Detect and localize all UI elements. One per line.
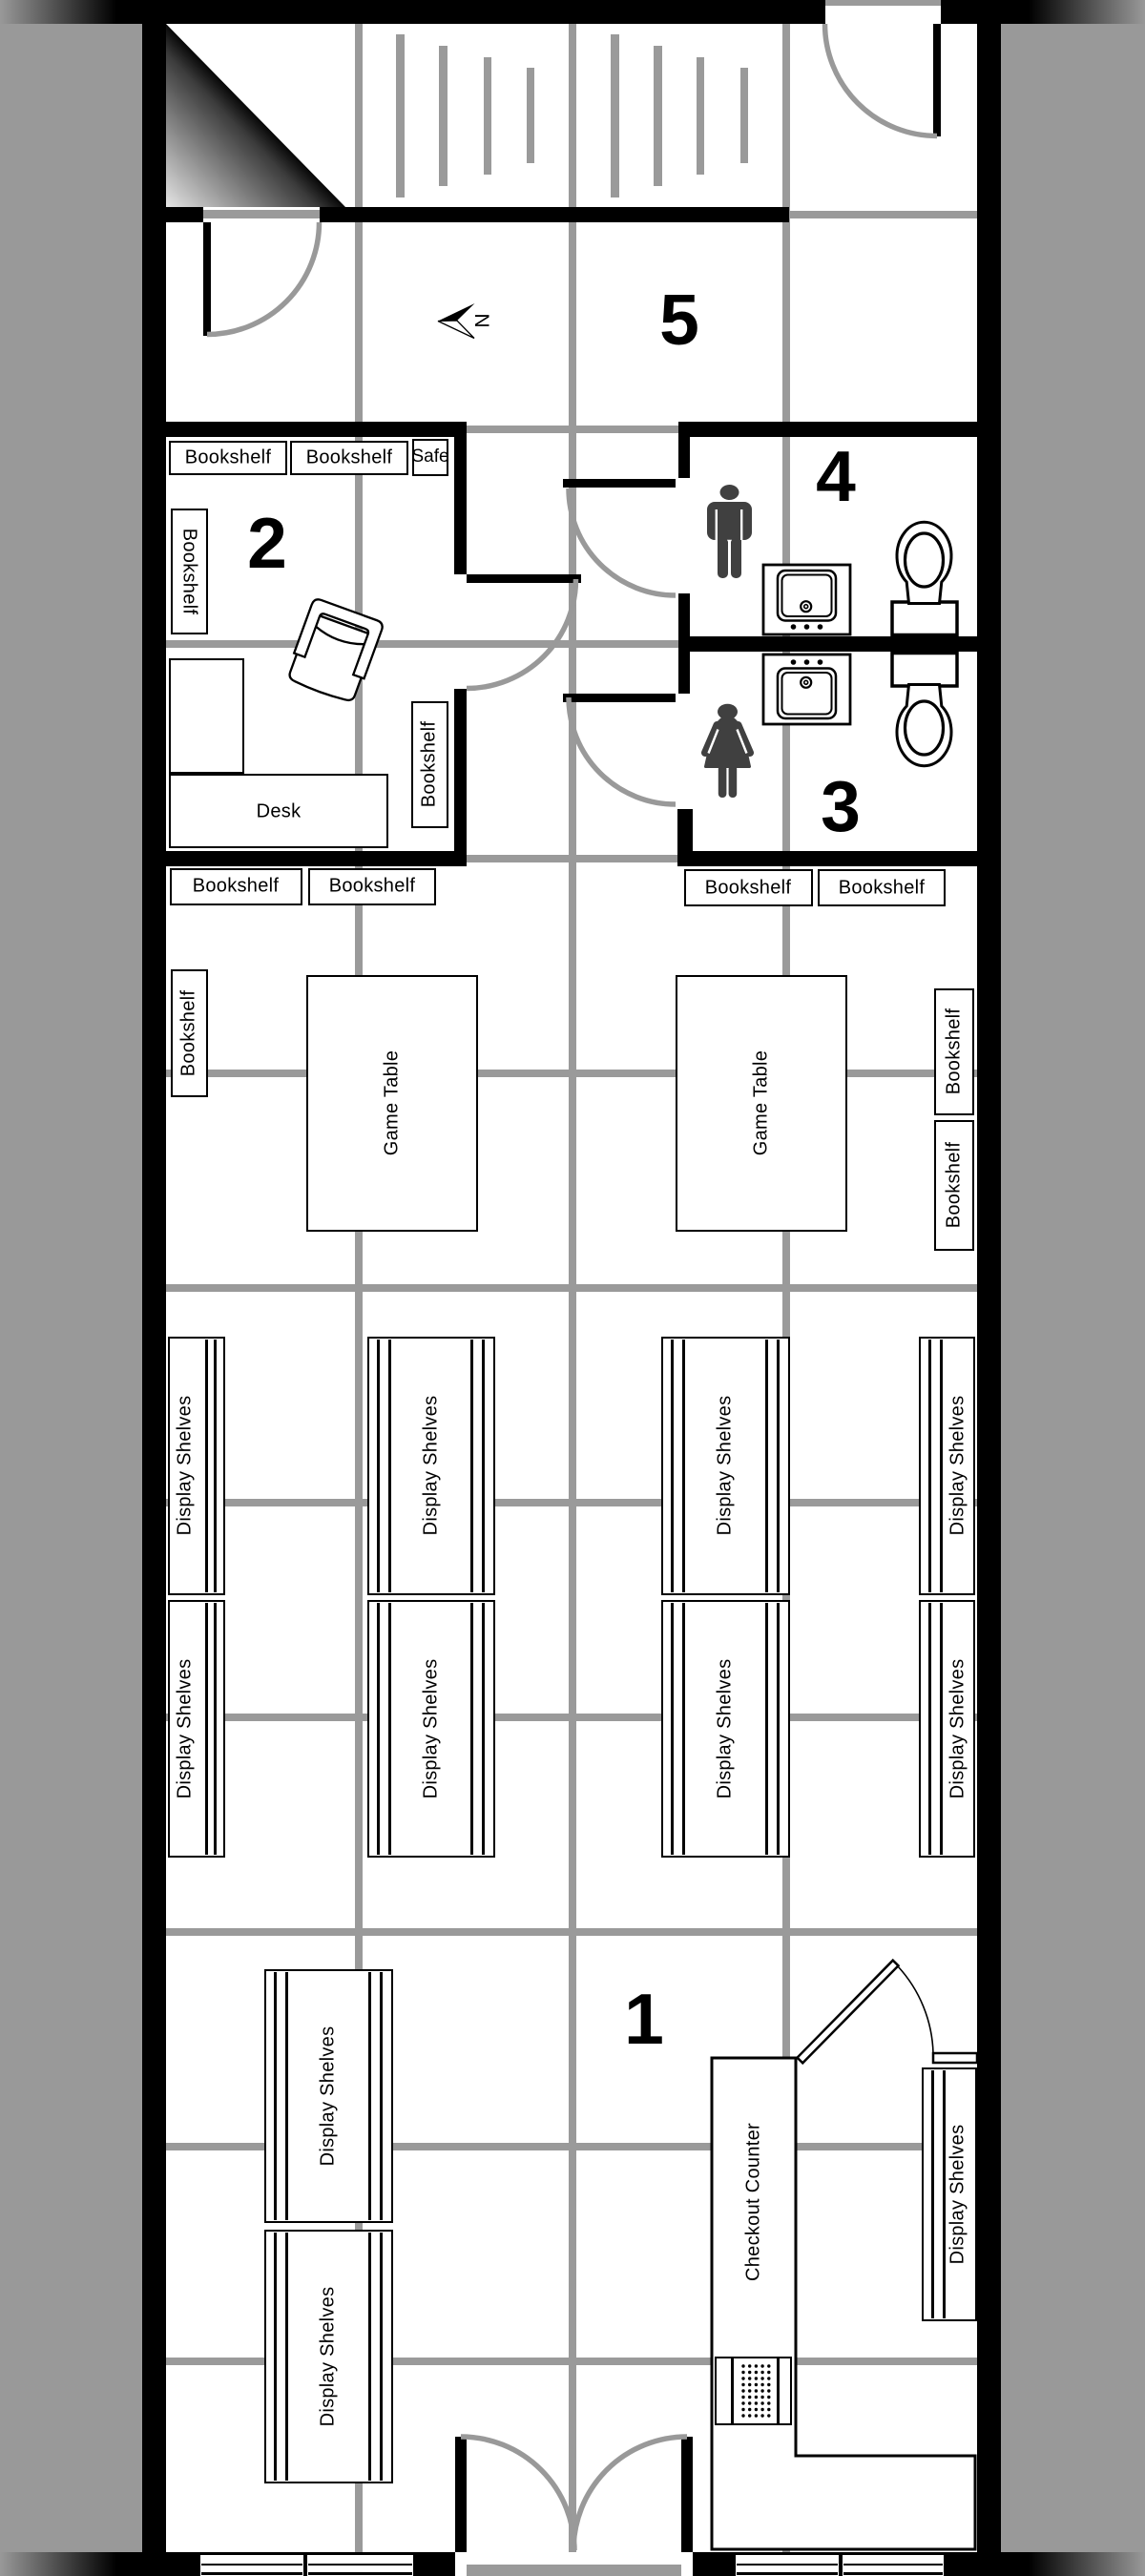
svg-text:N: N bbox=[472, 313, 494, 327]
